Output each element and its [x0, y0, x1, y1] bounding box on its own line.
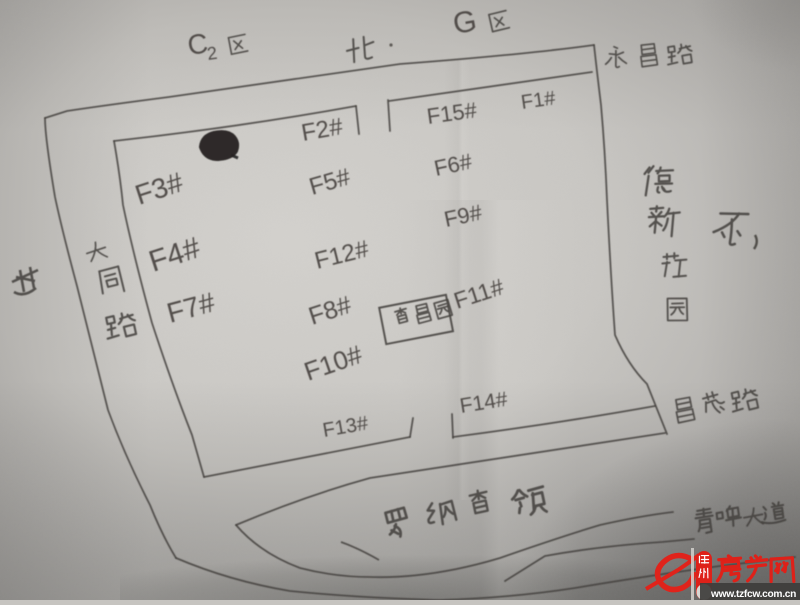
svg-text:www.tzfcw.com.cn: www.tzfcw.com.cn	[710, 589, 796, 600]
